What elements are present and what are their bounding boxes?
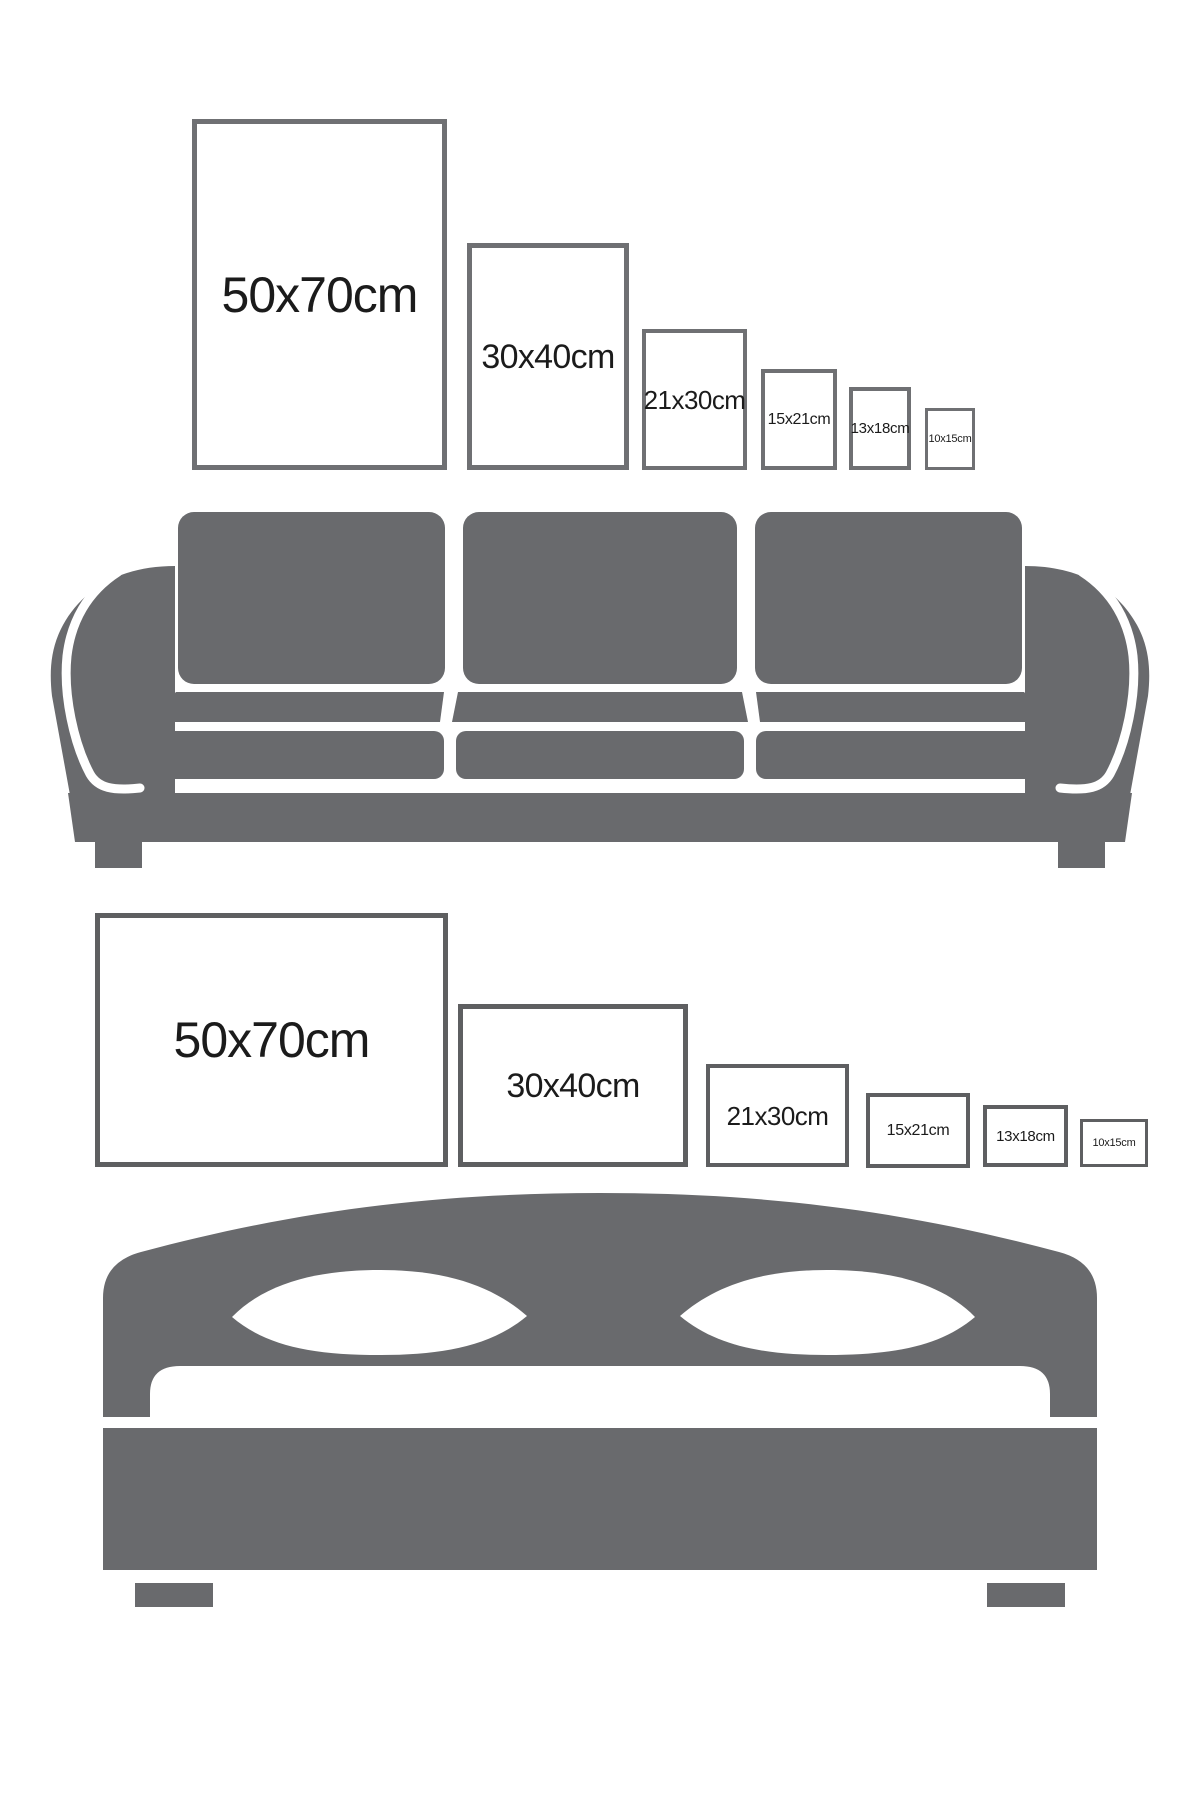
- sofa-foot-left: [95, 842, 142, 868]
- size-frame-30x40-portrait: 30x40cm: [467, 243, 629, 470]
- sofa-back-cushion-right: [755, 512, 1022, 684]
- size-frame-21x30-landscape: 21x30cm: [706, 1064, 849, 1167]
- size-frame-10x15-landscape: 10x15cm: [1080, 1119, 1148, 1167]
- sofa-seat-cushion-left: [140, 731, 444, 779]
- sofa-back-cushion-left: [178, 512, 445, 684]
- size-frame-15x21-landscape: 15x21cm: [866, 1093, 970, 1168]
- bed-illustration: [103, 1193, 1097, 1607]
- sofa-deck-left: [146, 692, 444, 722]
- sofa-seat-cushion-middle: [456, 731, 744, 779]
- sofa-seat-cushion-right: [756, 731, 1060, 779]
- size-frame-10x15-portrait: 10x15cm: [925, 408, 975, 470]
- size-guide-infographic: 50x70cm 30x40cm 21x30cm 15x21cm 13x18cm …: [0, 0, 1200, 1800]
- size-frame-13x18-portrait: 13x18cm: [849, 387, 911, 470]
- size-label-13x18-landscape: 13x18cm: [996, 1129, 1055, 1144]
- size-label-21x30-landscape: 21x30cm: [727, 1103, 829, 1129]
- size-label-13x18-portrait: 13x18cm: [851, 421, 910, 436]
- size-frame-50x70-landscape: 50x70cm: [95, 913, 448, 1167]
- bed-foot-right: [987, 1583, 1065, 1607]
- size-label-10x15-portrait: 10x15cm: [928, 434, 971, 445]
- bed-foot-left: [135, 1583, 213, 1607]
- bed-mattress: [103, 1428, 1097, 1570]
- size-label-50x70-landscape: 50x70cm: [174, 1015, 370, 1065]
- size-label-30x40-landscape: 30x40cm: [506, 1069, 639, 1103]
- sofa-deck-middle: [452, 692, 748, 722]
- size-frame-15x21-portrait: 15x21cm: [761, 369, 837, 470]
- size-label-30x40-portrait: 30x40cm: [481, 340, 614, 374]
- sofa-illustration: [51, 512, 1149, 868]
- sofa-foot-right: [1058, 842, 1105, 868]
- sofa-back-cushion-middle: [463, 512, 737, 684]
- sofa-base: [68, 793, 1132, 842]
- size-label-15x21-landscape: 15x21cm: [887, 1123, 950, 1139]
- size-label-10x15-landscape: 10x15cm: [1092, 1138, 1135, 1149]
- size-label-15x21-portrait: 15x21cm: [768, 412, 831, 428]
- size-label-21x30-portrait: 21x30cm: [644, 387, 746, 413]
- size-frame-30x40-landscape: 30x40cm: [458, 1004, 688, 1167]
- size-frame-50x70-portrait: 50x70cm: [192, 119, 447, 470]
- size-label-50x70-portrait: 50x70cm: [222, 270, 418, 320]
- size-frame-13x18-landscape: 13x18cm: [983, 1105, 1068, 1167]
- sofa-deck-right: [756, 692, 1054, 722]
- size-frame-21x30-portrait: 21x30cm: [642, 329, 747, 470]
